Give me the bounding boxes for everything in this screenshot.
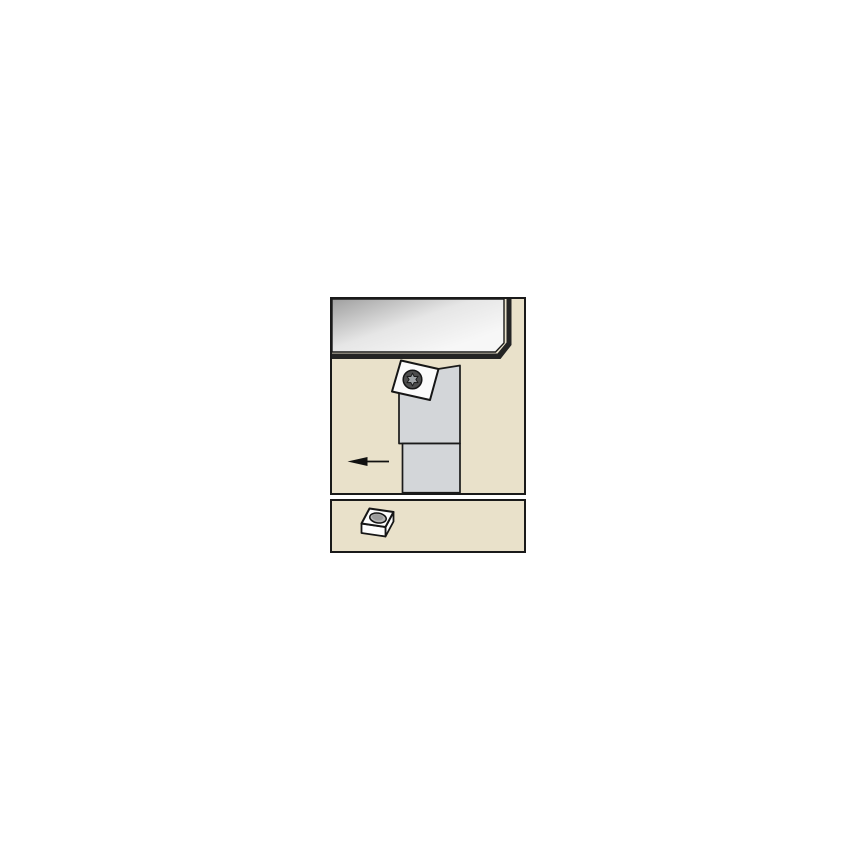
page-canvas [0, 0, 854, 854]
torx-screw-icon [403, 370, 422, 389]
diagram-canvas [0, 0, 854, 854]
square-insert-icon [362, 509, 394, 537]
workpiece-face [332, 299, 504, 352]
workpiece-illustration [332, 299, 512, 359]
toolholder-shank [403, 444, 461, 493]
insert-pictogram-panel [331, 500, 525, 552]
